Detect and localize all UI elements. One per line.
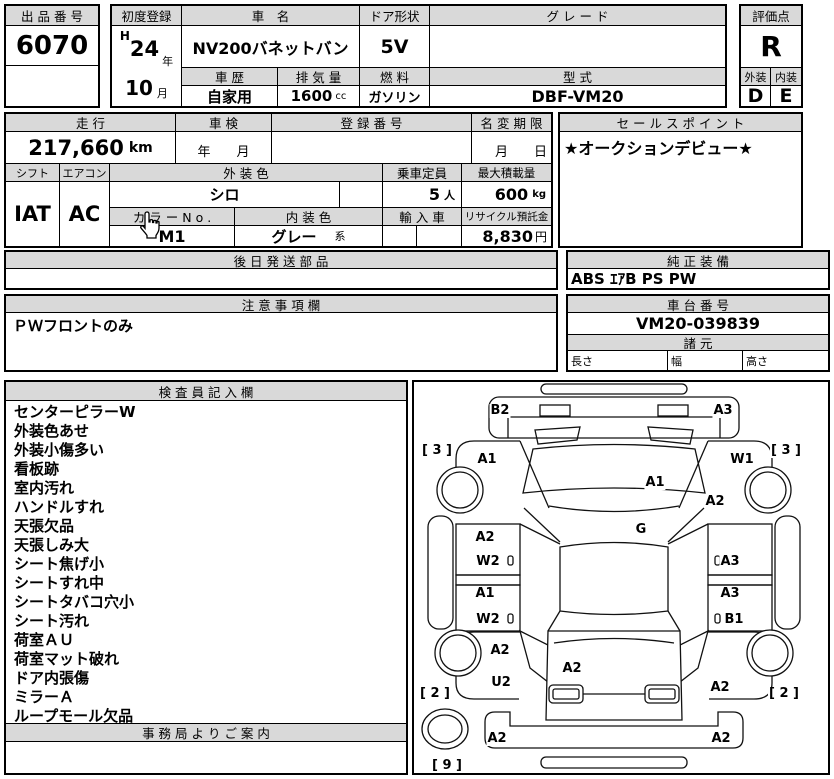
inspector-note-item: 外装色あせ xyxy=(6,422,406,441)
score-box: 評価点 R 外装 内装 D E xyxy=(739,4,803,108)
door-shape-value: 5V xyxy=(360,26,430,68)
damage-marker-front-fender-left: A1 xyxy=(476,453,497,467)
inspector-note-item: シート焦げ小 xyxy=(6,555,406,574)
notes-value: ＰＷフロントのみ xyxy=(6,313,556,337)
capacity-value: 5人 xyxy=(383,182,462,208)
fuel-label: 燃 料 xyxy=(360,68,430,86)
interior-color-suffix: 系 xyxy=(335,228,346,244)
lot-number-value: 6070 xyxy=(6,26,98,66)
inspector-note-item: ミラーＡ xyxy=(6,688,406,707)
color-no-label: カ ラ ー N o . xyxy=(110,208,235,226)
first-registration-month: 10 xyxy=(125,76,153,100)
registration-number-value xyxy=(272,132,472,164)
specs-label: 諸 元 xyxy=(568,335,828,351)
import-car-value-2 xyxy=(417,226,462,246)
damage-marker-rear-bumper-left: A2 xyxy=(486,732,507,746)
spec-width-label: 幅 xyxy=(668,351,743,370)
damage-marker-rear-bumper-right: A2 xyxy=(710,732,731,746)
interior-score-label: 内装 xyxy=(771,68,801,86)
inspector-note-item: 天張欠品 xyxy=(6,517,406,536)
damage-marker-cowl-right: A2 xyxy=(704,495,725,509)
damage-marker-rear-fender-left-lower: U2 xyxy=(490,676,512,690)
recycle-deposit-number: 8,830 xyxy=(482,227,533,246)
aircon-value: AC xyxy=(60,182,110,246)
inspector-notes-label: 検 査 員 記 入 欄 xyxy=(6,382,406,401)
damage-marker-rear-gate: A2 xyxy=(561,662,582,676)
capacity-number: 5 xyxy=(429,185,440,204)
interior-color-name: グレー xyxy=(271,226,316,246)
grade-value xyxy=(430,26,725,68)
equipment-box: 純 正 装 備 ABS ｴｱB PS PW xyxy=(566,250,830,290)
displacement-label: 排 気 量 xyxy=(278,68,360,86)
mileage-unit: km xyxy=(129,140,153,156)
damage-marker-roof: G xyxy=(635,523,648,537)
inspector-notes-list: センターピラーW外装色あせ外装小傷多い看板跡室内汚れハンドルすれ天張欠品天張しみ… xyxy=(6,403,406,726)
door-shape-label: ドア形状 xyxy=(360,6,430,26)
spec-length-label: 長さ xyxy=(568,351,668,370)
inspector-note-item: 天張しみ大 xyxy=(6,536,406,555)
sales-point-value: ★オークションデビュー★ xyxy=(560,132,801,162)
aircon-label: エアコン xyxy=(60,164,110,182)
car-history-label: 車 歴 xyxy=(182,68,278,86)
exterior-color-value: シロ xyxy=(110,182,340,208)
exterior-color-extra xyxy=(340,182,383,208)
first-registration-label: 初度登録 xyxy=(112,6,182,26)
inspector-note-item: シートすれ中 xyxy=(6,574,406,593)
max-load-number: 600 xyxy=(495,185,528,204)
notes-box: 注 意 事 項 欄 ＰＷフロントのみ xyxy=(4,294,558,372)
equipment-value: ABS ｴｱB PS PW xyxy=(568,269,828,288)
inspector-note-item: 荷室ＡＵ xyxy=(6,631,406,650)
max-load-label: 最大積載量 xyxy=(462,164,551,182)
inspection-label: 車 検 xyxy=(176,114,272,132)
interior-score-value: E xyxy=(771,86,801,106)
model-code-label: 型 式 xyxy=(430,68,725,86)
chassis-value: VM20-039839 xyxy=(568,313,828,335)
car-history-value: 自家用 xyxy=(182,86,278,106)
first-registration-value: H24年 10月 xyxy=(112,26,182,106)
auction-sheet: 出 品 番 号 6070 初度登録 H24年 10月 車 名 NV200バネット… xyxy=(0,0,834,779)
first-registration-era: H xyxy=(120,29,130,43)
equipment-label: 純 正 装 備 xyxy=(568,252,828,269)
mileage-number: 217,660 xyxy=(28,136,124,160)
first-registration-month-unit: 月 xyxy=(157,85,168,101)
office-info-label: 事 務 局 よ り ご 案 内 xyxy=(6,723,406,742)
office-info-value xyxy=(6,742,406,773)
sales-point-box: セ ー ル ス ポ イ ン ト ★オークションデビュー★ xyxy=(558,112,803,248)
recycle-deposit-value: 8,830円 xyxy=(462,226,551,246)
import-car-value-1 xyxy=(383,226,417,246)
inspector-notes-box: 検 査 員 記 入 欄 センターピラーW外装色あせ外装小傷多い看板跡室内汚れハン… xyxy=(4,380,408,775)
inspector-note-item: 室内汚れ xyxy=(6,479,406,498)
first-registration-year: 24 xyxy=(130,37,159,61)
exterior-score-value: D xyxy=(741,86,771,106)
chassis-label: 車 台 番 号 xyxy=(568,296,828,313)
capacity-unit: 人 xyxy=(444,187,455,203)
later-parts-box: 後 日 発 送 部 品 xyxy=(4,250,558,290)
exterior-color-label: 外 装 色 xyxy=(110,164,383,182)
damage-marker-windshield: A1 xyxy=(644,476,665,490)
inspector-note-item: ドア内張傷 xyxy=(6,669,406,688)
registration-number-label: 登 録 番 号 xyxy=(272,114,472,132)
max-load-value: 600kg xyxy=(462,182,551,208)
mileage-label: 走 行 xyxy=(6,114,176,132)
sales-point-label: セ ー ル ス ポ イ ン ト xyxy=(560,114,801,132)
damage-marker-rear-door-right: B1 xyxy=(724,613,745,627)
damage-marker-rear-door-left: W2 xyxy=(475,613,500,627)
damage-marker-tire-grade-front-left: [ 3 ] xyxy=(421,444,453,458)
recycle-deposit-label: リサイクル預託金 xyxy=(462,208,551,226)
damage-marker-front-door-right: A3 xyxy=(719,555,740,569)
damage-marker-tire-grade-rear-right: [ 2 ] xyxy=(768,687,800,701)
chassis-box: 車 台 番 号 VM20-039839 諸 元 長さ 幅 高さ xyxy=(566,294,830,372)
later-parts-value xyxy=(6,269,556,288)
inspector-note-item: シートタバコ穴小 xyxy=(6,593,406,612)
score-label: 評価点 xyxy=(741,6,801,26)
damage-marker-rear-fender-left: A2 xyxy=(489,644,510,658)
lot-number-box: 出 品 番 号 6070 xyxy=(4,4,100,108)
notes-label: 注 意 事 項 欄 xyxy=(6,296,556,313)
damage-marker-tire-grade-front-right: [ 3 ] xyxy=(770,444,802,458)
mileage-value: 217,660km xyxy=(6,132,176,164)
name-change-value: 月 日 xyxy=(472,132,551,164)
displacement-unit: cc xyxy=(335,91,346,102)
shift-value: IAT xyxy=(6,182,60,246)
model-code-value: DBF-VM20 xyxy=(430,86,725,106)
damage-marker-front-fender-right: W1 xyxy=(729,453,754,467)
damage-marker-front-bumper-left: B2 xyxy=(490,404,511,418)
mouse-cursor xyxy=(138,210,162,240)
damage-marker-rear-fender-right: A2 xyxy=(709,681,730,695)
inspector-note-item: 看板跡 xyxy=(6,460,406,479)
score-value: R xyxy=(741,26,801,68)
inspection-value: 年 月 xyxy=(176,132,272,164)
damage-marker-front-door-left-upper: A2 xyxy=(474,531,495,545)
damage-marker-front-bumper-right: A3 xyxy=(712,404,733,418)
displacement-number: 1600 xyxy=(291,87,333,105)
fuel-value: ガソリン xyxy=(360,86,430,106)
recycle-deposit-unit: 円 xyxy=(535,228,547,245)
later-parts-label: 後 日 発 送 部 品 xyxy=(6,252,556,269)
name-change-label: 名 変 期 限 xyxy=(472,114,551,132)
inspector-note-item: 外装小傷多い xyxy=(6,441,406,460)
damage-marker-layer: B2A3[ 3 ][ 3 ]A1W1A1A2GA2W2A3A1A3W2B1A2A… xyxy=(412,380,830,775)
grade-label: グ レ ー ド xyxy=(430,6,725,26)
lot-number-label: 出 品 番 号 xyxy=(6,6,98,26)
interior-color-label: 内 装 色 xyxy=(235,208,383,226)
color-no-value: M1 xyxy=(110,226,235,246)
damage-marker-front-door-left: W2 xyxy=(475,555,500,569)
car-damage-diagram: B2A3[ 3 ][ 3 ]A1W1A1A2GA2W2A3A1A3W2B1A2A… xyxy=(412,380,830,775)
mileage-shift-table: 走 行 217,660km 車 検 年 月 登 録 番 号 名 変 期 限 月 … xyxy=(4,112,553,248)
first-registration-year-unit: 年 xyxy=(162,53,173,69)
interior-color-value: グレー系 xyxy=(235,226,383,246)
shift-label: シフト xyxy=(6,164,60,182)
damage-marker-spare-tire-grade: [ 9 ] xyxy=(431,759,463,773)
car-name-label: 車 名 xyxy=(182,6,360,26)
car-name-value: NV200バネットバン xyxy=(182,26,360,68)
import-car-label: 輸 入 車 xyxy=(383,208,462,226)
inspector-note-item: 荷室マット破れ xyxy=(6,650,406,669)
damage-marker-tire-grade-rear-left: [ 2 ] xyxy=(419,687,451,701)
exterior-score-label: 外装 xyxy=(741,68,771,86)
damage-marker-rear-door-left-upper: A1 xyxy=(474,587,495,601)
capacity-label: 乗車定員 xyxy=(383,164,462,182)
vehicle-info-table: 初度登録 H24年 10月 車 名 NV200バネットバン 車 歴 自家用 排 … xyxy=(110,4,727,108)
spec-height-label: 高さ xyxy=(743,351,828,370)
displacement-value: 1600cc xyxy=(278,86,360,106)
inspector-note-item: ハンドルすれ xyxy=(6,498,406,517)
inspector-note-item: センターピラーW xyxy=(6,403,406,422)
inspector-note-item: シート汚れ xyxy=(6,612,406,631)
max-load-unit: kg xyxy=(532,189,546,200)
damage-marker-rear-door-right-upper: A3 xyxy=(719,587,740,601)
